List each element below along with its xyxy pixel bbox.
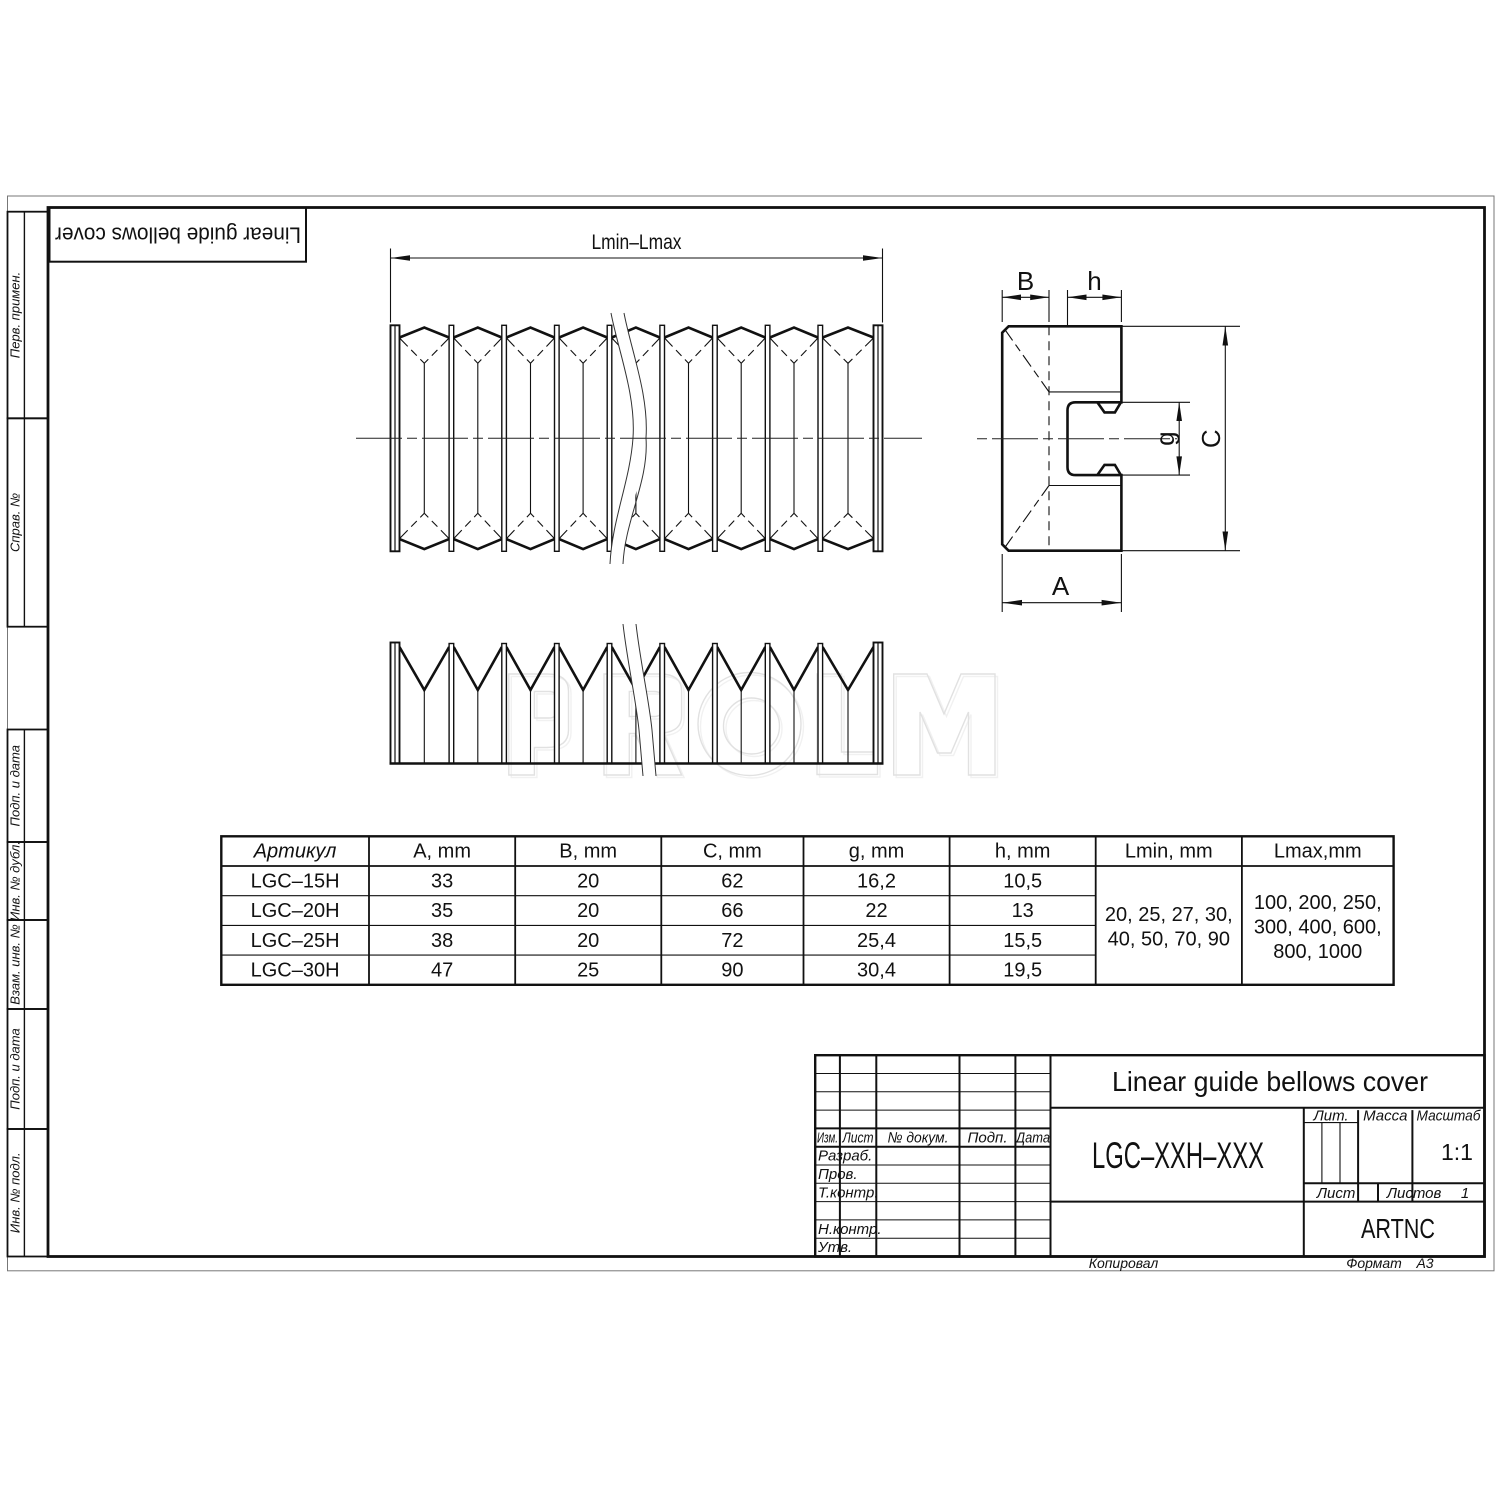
svg-text:g: g [1150, 431, 1180, 445]
svg-text:13: 13 [1012, 900, 1034, 922]
svg-text:25,4: 25,4 [857, 930, 896, 952]
svg-text:Лист: Лист [842, 1129, 874, 1146]
svg-text:40, 50, 70, 90: 40, 50, 70, 90 [1108, 929, 1230, 951]
svg-text:Инв. № дубл.: Инв. № дубл. [8, 841, 23, 921]
svg-text:15,5: 15,5 [1003, 930, 1042, 952]
svg-text:LGC–30H: LGC–30H [251, 960, 340, 982]
svg-text:66: 66 [721, 900, 743, 922]
svg-text:C, mm: C, mm [703, 841, 762, 863]
svg-text:20: 20 [577, 871, 599, 893]
svg-text:20: 20 [577, 900, 599, 922]
svg-text:33: 33 [431, 871, 453, 893]
svg-text:38: 38 [431, 930, 453, 952]
svg-text:ARTNC: ARTNC [1361, 1213, 1435, 1244]
svg-text:1: 1 [1461, 1185, 1469, 1202]
svg-text:A: A [1052, 571, 1070, 601]
svg-text:Подп. и дата: Подп. и дата [8, 1028, 23, 1109]
svg-text:B, mm: B, mm [559, 841, 617, 863]
svg-text:Подп.: Подп. [968, 1129, 1008, 1146]
svg-text:72: 72 [721, 930, 743, 952]
svg-text:Т.контр.: Т.контр. [818, 1184, 879, 1201]
svg-text:Н.контр.: Н.контр. [818, 1221, 882, 1238]
svg-text:h: h [1087, 266, 1101, 296]
svg-text:Утв.: Утв. [817, 1239, 852, 1256]
svg-text:Лит.: Лит. [1312, 1108, 1348, 1125]
svg-text:Пров.: Пров. [818, 1166, 858, 1183]
svg-text:10,5: 10,5 [1003, 871, 1042, 893]
svg-text:Масса: Масса [1363, 1108, 1407, 1125]
svg-text:C: C [1196, 429, 1226, 448]
svg-text:1:1: 1:1 [1441, 1139, 1473, 1165]
svg-text:LGC–25H: LGC–25H [251, 930, 340, 952]
svg-text:Разраб.: Разраб. [818, 1148, 872, 1165]
svg-text:Дата: Дата [1014, 1129, 1050, 1146]
svg-text:№ докум.: № докум. [888, 1129, 949, 1146]
svg-text:Lmin–Lmax: Lmin–Lmax [592, 231, 682, 254]
svg-text:Формат: Формат [1346, 1255, 1402, 1271]
svg-text:Листов: Листов [1386, 1185, 1442, 1202]
svg-text:19,5: 19,5 [1003, 960, 1042, 982]
svg-text:B: B [1017, 266, 1034, 296]
svg-text:Linear guide bellows cover: Linear guide bellows cover [55, 223, 301, 248]
svg-text:Инв. № подл.: Инв. № подл. [8, 1152, 23, 1233]
svg-text:Взам. инв. №: Взам. инв. № [8, 924, 23, 1004]
svg-text:Лист: Лист [1316, 1185, 1356, 1202]
svg-text:25: 25 [577, 960, 599, 982]
svg-text:LGC–20H: LGC–20H [251, 900, 340, 922]
svg-text:90: 90 [721, 960, 743, 982]
svg-text:Справ. №: Справ. № [8, 493, 23, 552]
svg-text:LGC–15H: LGC–15H [251, 871, 340, 893]
svg-text:30,4: 30,4 [857, 960, 896, 982]
svg-text:20, 25, 27, 30,: 20, 25, 27, 30, [1105, 904, 1233, 926]
svg-text:47: 47 [431, 960, 453, 982]
svg-text:Lmin, mm: Lmin, mm [1125, 841, 1213, 863]
svg-text:62: 62 [721, 871, 743, 893]
svg-text:16,2: 16,2 [857, 871, 896, 893]
svg-text:Масштаб: Масштаб [1417, 1108, 1482, 1125]
svg-text:300, 400, 600,: 300, 400, 600, [1254, 917, 1382, 939]
svg-text:LGC–XXH–XXX: LGC–XXH–XXX [1092, 1135, 1264, 1176]
svg-text:Lmax,mm: Lmax,mm [1274, 841, 1362, 863]
svg-text:22: 22 [865, 900, 887, 922]
svg-text:100, 200, 250,: 100, 200, 250, [1254, 892, 1382, 914]
svg-text:Копировал: Копировал [1089, 1255, 1159, 1271]
svg-text:g, mm: g, mm [849, 841, 905, 863]
svg-text:Подп. и дата: Подп. и дата [8, 745, 23, 826]
svg-text:20: 20 [577, 930, 599, 952]
svg-text:А3: А3 [1415, 1255, 1433, 1271]
svg-text:Изм.: Изм. [817, 1129, 838, 1146]
svg-text:h, mm: h, mm [995, 841, 1051, 863]
svg-text:Артикул: Артикул [253, 841, 337, 863]
svg-text:A, mm: A, mm [413, 841, 471, 863]
svg-text:Linear guide bellows cover: Linear guide bellows cover [1112, 1066, 1428, 1097]
svg-text:35: 35 [431, 900, 453, 922]
svg-text:800, 1000: 800, 1000 [1273, 941, 1362, 963]
svg-text:Перв. примен.: Перв. примен. [8, 272, 23, 358]
